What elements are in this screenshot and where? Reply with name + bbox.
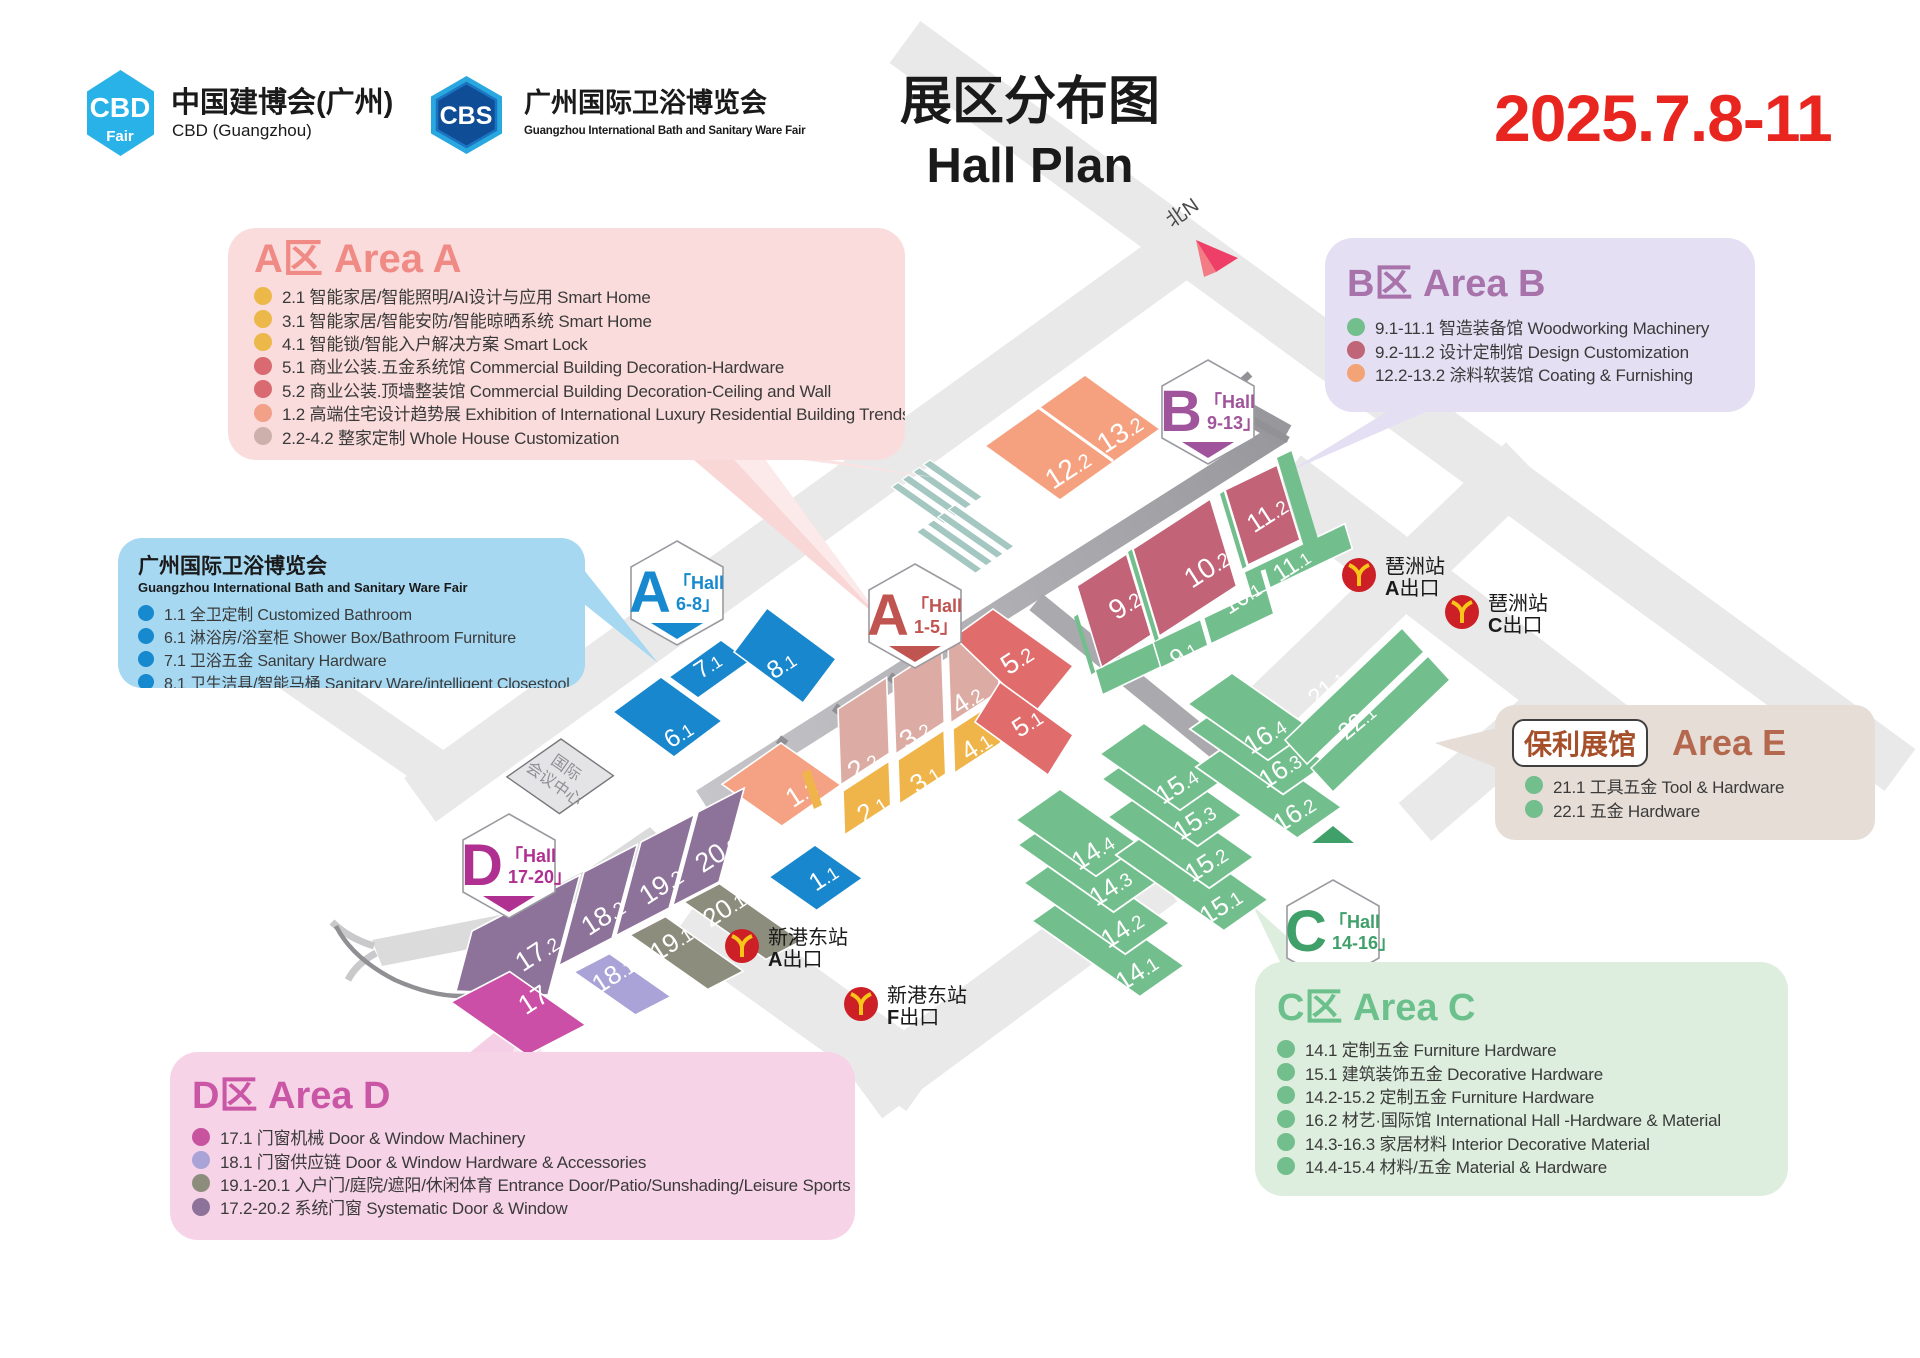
svg-text:6-8」: 6-8」 [676,594,720,614]
svg-text:琶洲站: 琶洲站 [1488,592,1548,615]
svg-text:新港东站: 新港东站 [768,926,848,949]
svg-text:「Hall: 「Hall [1204,391,1255,412]
svg-text:CBS: CBS [440,102,493,130]
svg-text:9-13」: 9-13」 [1207,413,1261,433]
svg-text:14-16」: 14-16」 [1332,933,1396,953]
svg-text:「Hall: 「Hall [911,595,962,616]
svg-text:「Hall: 「Hall [1329,911,1380,932]
svg-text:F出口: F出口 [887,1006,939,1029]
svg-text:A: A [867,583,909,648]
svg-text:A出口: A出口 [768,948,822,971]
svg-text:「Hall: 「Hall [673,572,724,593]
svg-text:「Hall: 「Hall [505,845,556,866]
svg-text:新港东站: 新港东站 [887,984,967,1007]
svg-text:CBD: CBD [90,92,151,123]
svg-text:17-20」: 17-20」 [508,867,572,887]
svg-text:Fair: Fair [106,128,134,145]
svg-text:1-5」: 1-5」 [914,617,958,637]
svg-text:B: B [1160,379,1202,444]
svg-text:D: D [461,833,503,898]
svg-text:琶洲站: 琶洲站 [1385,555,1445,578]
svg-text:C出口: C出口 [1488,614,1542,637]
svg-text:A: A [629,560,671,625]
svg-text:C: C [1285,899,1327,964]
svg-text:A出口: A出口 [1385,577,1439,600]
